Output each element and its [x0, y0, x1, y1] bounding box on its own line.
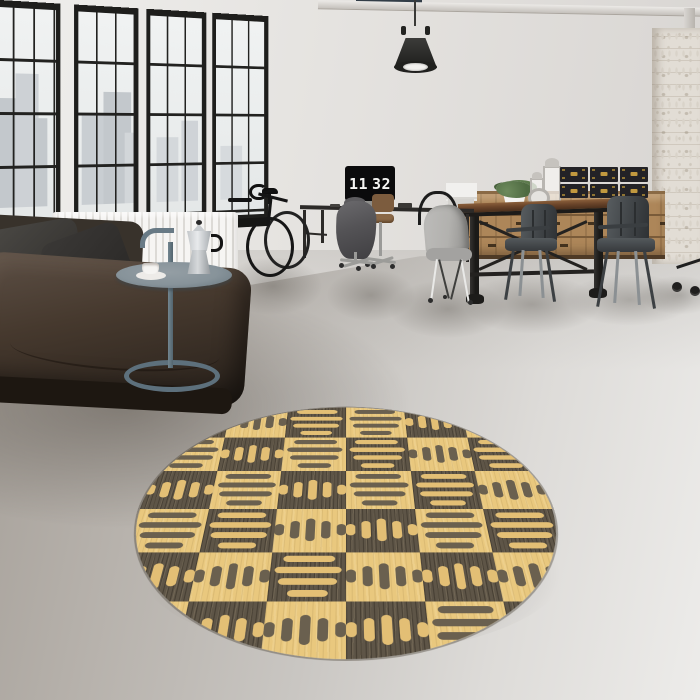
bicycle-handlebars: [249, 184, 267, 200]
side-table-tray: [116, 262, 232, 288]
dash-motif-vertical: [140, 471, 217, 509]
dash-motif-horizontal: [415, 509, 493, 552]
rug-tile: [404, 408, 468, 438]
dash-motif-horizontal: [346, 471, 415, 509]
loft-room-photo: 1132: [0, 0, 700, 700]
rug-tile: [425, 602, 516, 659]
wall-bracket: [228, 198, 252, 202]
pendant-lamp-cap: [405, 22, 426, 40]
dash-motif-vertical: [346, 509, 419, 552]
desk-accessory: [330, 204, 340, 207]
rug-tile: [475, 471, 552, 509]
dash-motif-horizontal: [126, 509, 209, 552]
dash-motif-vertical: [224, 408, 288, 438]
desk-leg: [321, 210, 324, 243]
metal-chair-back: [521, 204, 557, 242]
rug-tile: [153, 438, 225, 472]
storage-box: [560, 184, 588, 199]
dash-motif-horizontal: [461, 408, 528, 438]
rug-tile: [261, 602, 346, 659]
dash-motif-horizontal: [164, 408, 231, 438]
rug-tile: [277, 471, 346, 509]
office-chair-column: [379, 222, 382, 256]
pendant-lamp-diffuser: [403, 63, 428, 71]
metal-chair-seat: [597, 238, 655, 252]
dash-motif-horizontal: [281, 438, 345, 472]
rug-tile: [346, 602, 431, 659]
rug-tile: [224, 408, 288, 438]
dash-motif-vertical: [217, 438, 285, 472]
rug-tile: [209, 471, 282, 509]
rug-tile: [126, 509, 209, 552]
draped-coat: [335, 200, 377, 259]
rug-tile: [285, 408, 346, 438]
rug-tile: [109, 552, 199, 602]
bicycle-front-wheel: [246, 217, 294, 277]
dash-motif-horizontal: [267, 552, 346, 602]
dash-motif-horizontal: [153, 438, 225, 472]
rug-tile: [483, 509, 566, 552]
dash-motif-horizontal: [209, 471, 282, 509]
coffee-cup: [142, 263, 159, 274]
dash-motif-vertical: [188, 552, 272, 602]
storage-box: [560, 167, 588, 182]
round-rug: [140, 303, 552, 700]
window-muntins: [78, 11, 134, 222]
rug-tile: [461, 408, 528, 438]
dash-motif-vertical: [277, 471, 346, 509]
dash-motif-vertical: [273, 509, 346, 552]
window-2: [74, 4, 138, 236]
rug-tile: [281, 438, 345, 472]
dash-motif-vertical: [404, 408, 468, 438]
desk-accessory: [398, 203, 412, 208]
storage-box: [620, 167, 648, 182]
rug-tile: [273, 509, 346, 552]
window-1: [0, 0, 60, 241]
dash-motif-vertical: [346, 552, 425, 602]
window-3: [146, 9, 206, 233]
rug-tile: [415, 509, 493, 552]
molded-chair-foot: [443, 295, 447, 299]
dash-motif-vertical: [109, 552, 199, 602]
clock-minutes: 32: [372, 175, 391, 193]
dash-motif-vertical: [407, 438, 475, 472]
dash-motif-horizontal: [468, 438, 540, 472]
rug-tile: [346, 509, 419, 552]
rug-tile: [140, 471, 217, 509]
rug-grid: [90, 408, 601, 660]
window-pane: [78, 11, 134, 222]
storage-boxes: [560, 167, 648, 198]
pendant-lamp-lug: [425, 26, 430, 35]
dash-motif-vertical: [176, 602, 267, 659]
dash-motif-horizontal: [425, 602, 516, 659]
side-table-hook: [140, 228, 174, 248]
clock-hours: 11: [349, 175, 368, 193]
dash-motif-horizontal: [346, 438, 411, 472]
window-pane: [0, 7, 56, 227]
rug-tile: [410, 471, 483, 509]
lantern-dome: [532, 172, 542, 179]
metal-chair-back: [607, 196, 649, 240]
lantern-dome: [545, 158, 559, 167]
rug-tile: [346, 438, 411, 472]
rug-tile: [346, 471, 415, 509]
rug-tile: [176, 602, 267, 659]
window-muntins: [150, 16, 202, 220]
rug-tile: [199, 509, 277, 552]
pendant-lamp-lug: [401, 26, 406, 35]
dash-motif-horizontal: [483, 509, 566, 552]
office-chair-wheel: [390, 264, 395, 269]
rug-tile: [419, 552, 503, 602]
moka-pot-knob: [196, 220, 202, 225]
task-chair-wheel: [339, 263, 344, 268]
dash-motif-horizontal: [199, 509, 277, 552]
dash-motif-horizontal: [285, 408, 346, 438]
rug-tile: [217, 438, 285, 472]
rug-tile: [267, 552, 346, 602]
storage-box: [590, 167, 618, 182]
dash-motif-vertical: [419, 552, 503, 602]
metal-chair-slats: [620, 202, 637, 236]
dash-motif-vertical: [475, 471, 552, 509]
rug-tile: [346, 408, 407, 438]
dash-motif-horizontal: [410, 471, 483, 509]
dash-motif-horizontal: [346, 408, 407, 438]
rug-tile: [188, 552, 272, 602]
rug-tile: [407, 438, 475, 472]
rug-tile: [164, 408, 231, 438]
dash-motif-vertical: [261, 602, 346, 659]
window-pane: [150, 16, 202, 220]
metal-chair-seat: [505, 238, 557, 251]
office-chair-back: [372, 194, 394, 212]
dash-motif-vertical: [346, 602, 431, 659]
molded-chair-seat: [426, 248, 472, 261]
task-chair-wheel: [356, 266, 361, 271]
task-chair-wheel: [371, 264, 376, 269]
metal-chair-slats: [532, 210, 546, 238]
rug-tile: [468, 438, 540, 472]
window-muntins: [0, 7, 56, 227]
rug-tile: [346, 552, 425, 602]
